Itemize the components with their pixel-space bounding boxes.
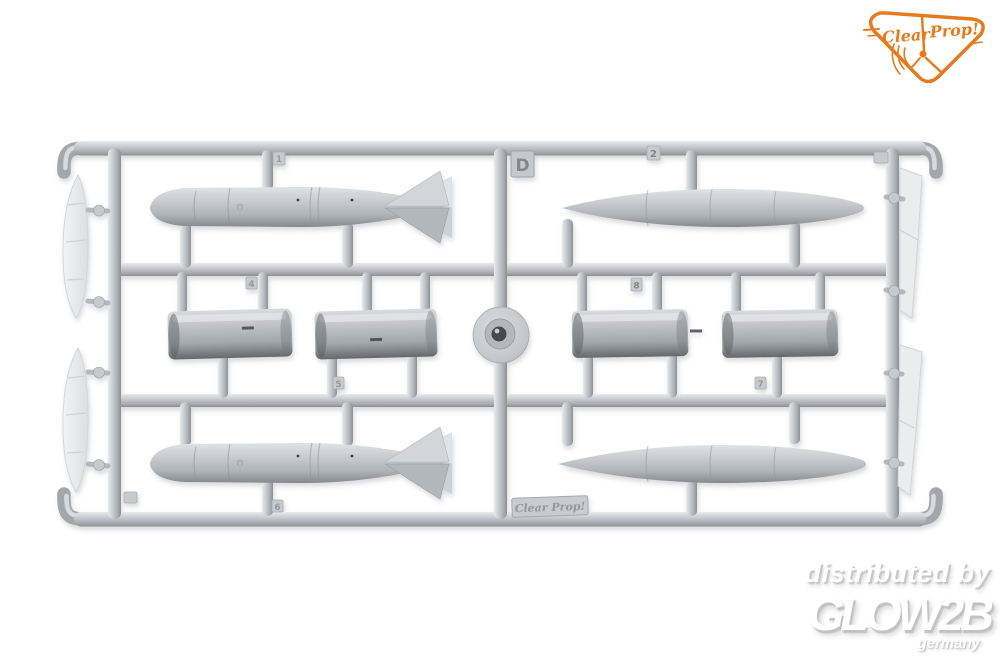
ball-joint: [94, 460, 105, 471]
tag-tab-blank: [874, 152, 888, 163]
part-drop-tank-bottom-right: [558, 445, 866, 483]
logo-word-prop: Prop!: [928, 19, 980, 41]
brand-plate: Clear Prop!: [512, 496, 589, 518]
runner: [342, 222, 353, 268]
runner: [407, 352, 417, 398]
runner: [772, 352, 782, 398]
part-tank-half-right-a: [572, 309, 689, 358]
ball-joint: [889, 286, 900, 297]
runner: [177, 272, 187, 314]
runner: [789, 402, 800, 444]
tag-number: 1: [276, 155, 282, 165]
rail-left: [108, 148, 121, 519]
ball-joint: [889, 193, 900, 204]
runner: [562, 402, 573, 446]
runner: [686, 150, 697, 194]
part-bomb-bottom-left: [150, 427, 452, 499]
ball-joint: [889, 368, 900, 379]
runner: [180, 402, 191, 446]
tag-tab-blank: [124, 492, 137, 503]
runner: [667, 352, 677, 398]
tag-number: 7: [757, 380, 763, 390]
runner: [262, 478, 273, 516]
part-tank-half-left-b: [314, 308, 437, 359]
runner: [218, 352, 228, 398]
ball-joint: [889, 458, 900, 469]
runner: [420, 272, 430, 312]
tag-number: 2: [650, 149, 657, 160]
tag-number: 8: [633, 282, 639, 292]
watermark-line2: GLOW2B: [804, 590, 990, 637]
part-bomb-top-left: [150, 171, 452, 243]
runner: [652, 272, 662, 316]
runner: [583, 352, 593, 398]
clearprop-logo: Clear Prop!: [852, 4, 997, 104]
product-photo: D 1 2 4 5 6 7 8 Clear Prop! Clear: [0, 0, 1000, 667]
runner: [258, 272, 268, 314]
runner: [731, 272, 741, 316]
distributor-watermark: distributed by GLOW2B germany: [804, 560, 990, 651]
runner: [342, 402, 353, 446]
center-hub: [473, 307, 529, 363]
tag-number: 4: [248, 280, 254, 290]
watermark-line1: distributed by: [804, 560, 990, 587]
gate-letter: D: [515, 156, 529, 176]
runner: [362, 272, 372, 314]
runner: [789, 221, 800, 268]
runner: [262, 150, 273, 190]
part-tank-half-right-b: [690, 309, 839, 359]
tag-number: 6: [274, 503, 280, 513]
runner: [180, 222, 191, 268]
tag-number: 5: [335, 380, 341, 390]
brand-plate-text: Clear Prop!: [515, 500, 586, 515]
part-drop-tank-top-right: [562, 189, 864, 227]
runner: [562, 219, 573, 268]
ball-joint: [94, 367, 105, 378]
part-slat-left-upper: [63, 175, 108, 318]
part-tank-half-left-a: [167, 308, 292, 359]
ball-joint: [94, 297, 105, 308]
ball-joint: [94, 205, 105, 216]
runner: [577, 272, 587, 316]
part-slat-left-lower: [63, 348, 108, 492]
